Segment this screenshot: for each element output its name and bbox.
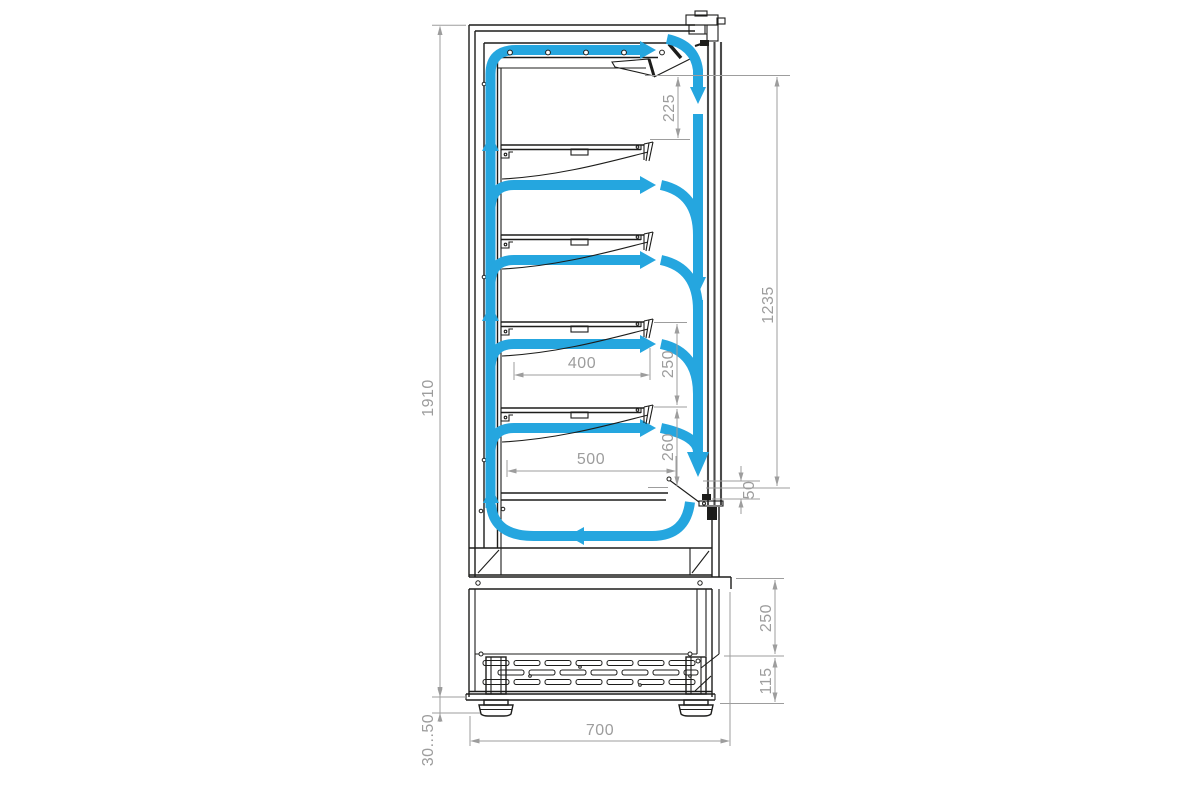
flow-rear-top-duct <box>491 50 643 508</box>
dim-lower-shelf-clearance: 260 <box>648 409 680 488</box>
flow-arrowhead-up-icon <box>483 486 499 503</box>
flow-arrowhead-down-large-icon <box>687 452 709 477</box>
door-top-hinge <box>686 11 725 46</box>
dim-base-section-height-label: 250 <box>758 604 775 632</box>
ventilation-grille <box>483 661 698 687</box>
dim-shelf-depth-label: 400 <box>568 355 596 372</box>
flow-arrowhead-right-icon <box>640 176 656 194</box>
dim-interior-depth-label: 500 <box>577 451 605 468</box>
flow-arrowhead-right-icon <box>640 251 656 269</box>
shelf-1 <box>501 142 653 179</box>
drawing-canvas: 1910 30...50 225 1235 <box>0 0 1200 800</box>
dim-overall-height-label: 1910 <box>420 379 437 417</box>
dim-interior-depth: 500 <box>507 451 676 477</box>
dim-display-opening-height-label: 1235 <box>760 286 777 324</box>
shelf-3 <box>501 319 653 356</box>
dim-shelf-spacing-label: 250 <box>660 350 677 378</box>
flow-bottom-return <box>491 502 690 536</box>
dim-overall-height: 1910 <box>420 25 466 697</box>
base-unit <box>466 577 731 716</box>
dim-feet-range-label: 30...50 <box>420 714 437 766</box>
flow-arrowhead-right-icon <box>640 419 656 437</box>
dim-lower-shelf-clearance-label: 260 <box>660 433 677 461</box>
dim-air-return-gap-label: 50 <box>741 481 758 500</box>
dim-base-section-height: 250 <box>724 579 784 657</box>
flow-arrowhead-left-icon <box>568 527 584 545</box>
dim-top-air-gap: 225 <box>645 76 790 140</box>
dim-display-opening-height: 1235 <box>706 77 790 488</box>
flow-arrowhead-down-icon <box>690 87 706 104</box>
dim-air-return-gap: 50 <box>703 466 760 514</box>
dim-shelf-spacing: 250 <box>654 323 687 408</box>
dim-base-depth-label: 700 <box>586 722 614 739</box>
dim-top-air-gap-label: 225 <box>661 94 678 122</box>
flow-arrowhead-right-icon <box>640 335 656 353</box>
technical-drawing: 1910 30...50 225 1235 <box>0 0 1200 800</box>
dim-grille-height-label: 115 <box>758 667 775 694</box>
